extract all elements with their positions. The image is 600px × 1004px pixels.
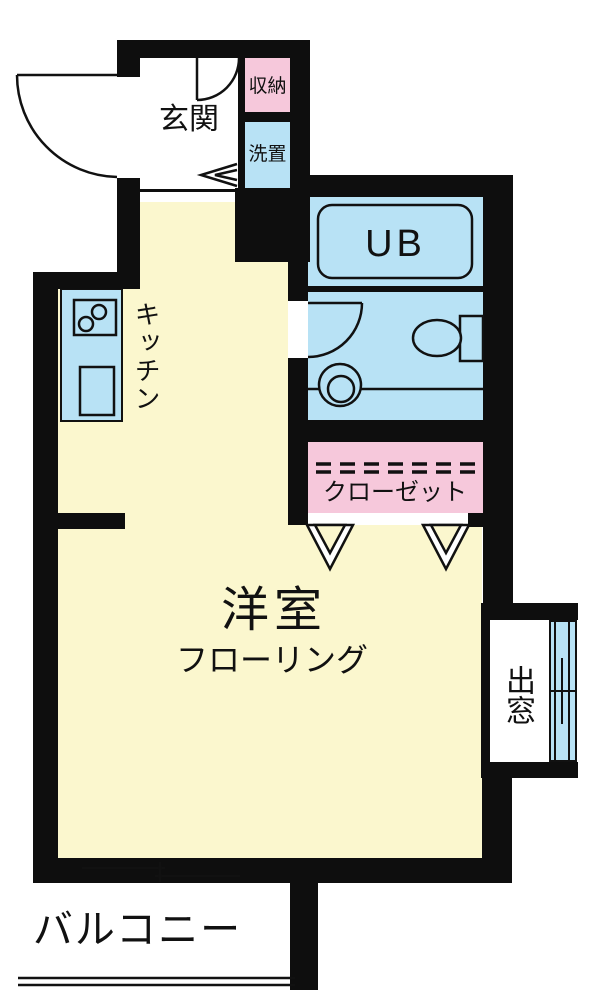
- wall: [481, 620, 490, 762]
- wall: [117, 40, 310, 58]
- wall: [482, 778, 512, 858]
- wall: [288, 197, 308, 301]
- wall: [290, 40, 310, 197]
- wall: [33, 272, 58, 858]
- bay-window-label: 出窓: [500, 640, 534, 750]
- wall: [238, 112, 290, 122]
- wall: [140, 189, 238, 192]
- balcony-railing-icon: [18, 978, 295, 985]
- laundry-label: 洗置: [245, 133, 290, 175]
- wall: [468, 513, 483, 527]
- kitchen-counter: [60, 288, 123, 422]
- entrance-door-swing-icon: [17, 75, 117, 177]
- wall: [58, 513, 125, 529]
- wall: [481, 603, 578, 620]
- wall: [58, 858, 512, 883]
- unit-bath-label: UB: [308, 223, 483, 265]
- floor-plan: 玄関 収納 洗置 UB キッチン クローゼット 洋室 フローリング 出窓 バルコ…: [0, 0, 600, 1004]
- wall: [288, 420, 513, 442]
- main-room-label: 洋室: [174, 583, 374, 638]
- wall: [481, 762, 578, 778]
- wall: [308, 286, 483, 292]
- bay-window-glass: [549, 620, 577, 762]
- entrance-label: 玄関: [140, 102, 238, 138]
- closet-label: クローゼット: [307, 478, 483, 508]
- wall: [483, 175, 513, 607]
- flooring-label: フローリング: [122, 641, 422, 679]
- balcony-label: バルコニー: [35, 905, 240, 955]
- wall: [117, 178, 140, 274]
- wall: [290, 175, 513, 197]
- main-room-area: [140, 202, 235, 262]
- main-room-area: [140, 262, 288, 288]
- main-room-area: [58, 525, 482, 858]
- storage-label: 収納: [245, 65, 290, 107]
- kitchen-label: キッチン: [130, 303, 162, 411]
- wall: [238, 58, 245, 188]
- wall: [290, 883, 318, 990]
- wall: [117, 40, 140, 77]
